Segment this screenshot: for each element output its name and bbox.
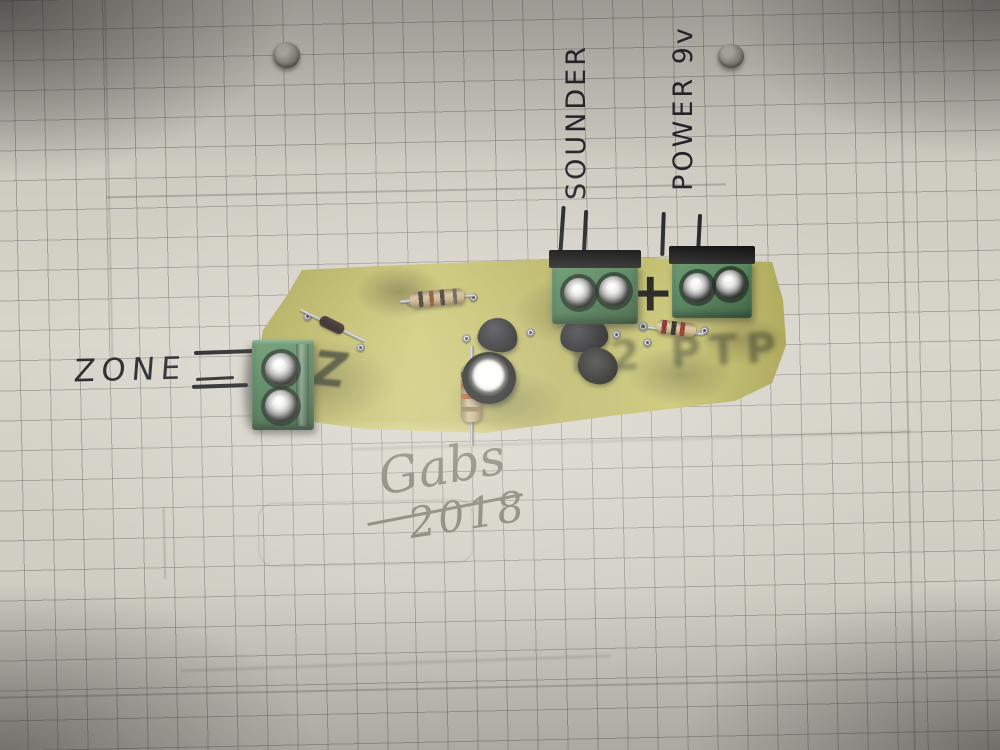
electrolytic-capacitor — [462, 352, 516, 404]
heavy-rule-vertical — [104, 0, 114, 358]
terminal-screw — [564, 278, 594, 308]
terminal-screw — [265, 353, 297, 385]
photo-scene: SOUNDER POWER 9v ZONE Gabs 2018 Z + R2 P… — [0, 0, 1000, 750]
sounder-terminal-block — [552, 264, 638, 324]
pencil-sketch-line — [181, 655, 611, 672]
pcb-z-marking: Z — [309, 340, 349, 399]
zone-label: ZONE — [73, 350, 188, 389]
solder-pad — [462, 334, 471, 343]
resistor-lead-loop — [638, 321, 649, 332]
terminal-screw — [599, 276, 629, 306]
terminal-screw — [265, 390, 297, 422]
magnet-disc-left — [273, 42, 300, 68]
heavy-rule-vertical — [897, 0, 917, 750]
pcb-assembly: Z + R2 PTP — [250, 250, 790, 440]
solder-pad — [526, 328, 535, 337]
resistor-body — [655, 319, 696, 338]
heavy-rule-horizontal — [0, 675, 1000, 700]
pencil-sketch-line — [163, 507, 167, 579]
magnet-disc-right — [718, 44, 744, 68]
resistor-body — [409, 288, 464, 309]
power-terminal-block — [672, 260, 752, 318]
terminal-top — [669, 246, 755, 264]
terminal-screw — [716, 270, 745, 299]
terminal-top — [549, 250, 641, 268]
solder-pad — [612, 330, 621, 339]
sounder-label: SOUNDER — [557, 42, 597, 202]
power-label: POWER 9v — [664, 23, 704, 193]
zone-terminal-block — [252, 340, 314, 430]
terminal-ridge — [296, 344, 309, 426]
terminal-screw — [683, 273, 712, 302]
heavy-rule-horizontal — [106, 183, 726, 198]
